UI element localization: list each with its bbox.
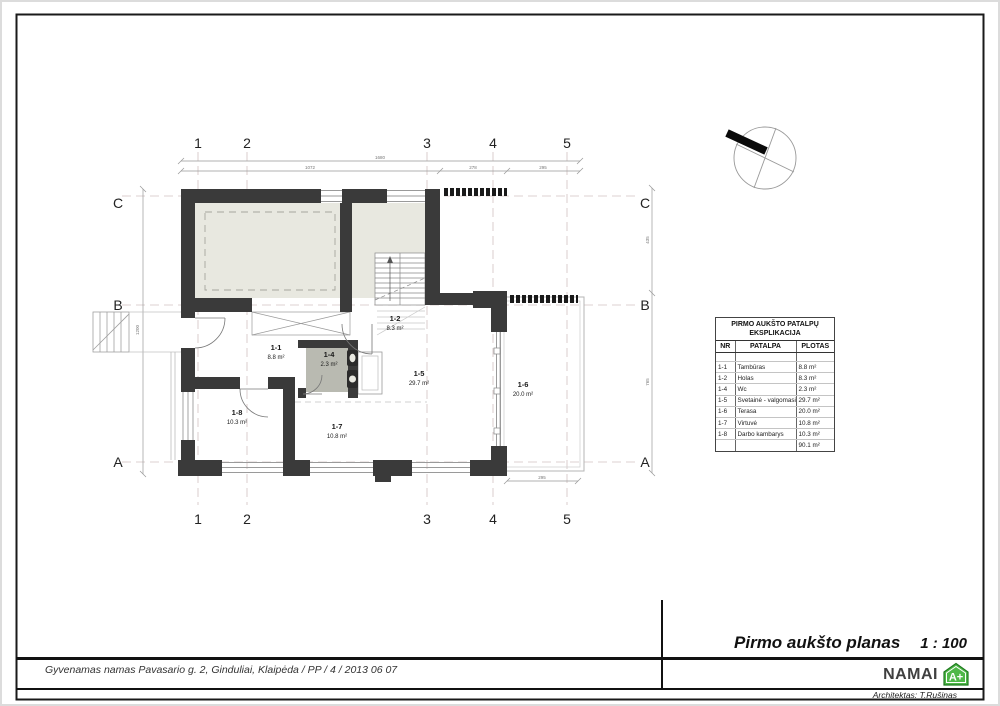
room-area-1-8: 10.3 m² <box>227 420 247 426</box>
grid-col-1-top: 1 <box>194 135 202 151</box>
table-row: 1-1 Tambūras 8.8 m² <box>716 362 834 373</box>
dim-top-seg1: 1072 <box>305 165 316 170</box>
drawing-sheet: 1680 1072 278 295 1200 435 765 295 <box>0 0 1000 706</box>
grid-row-a-left: A <box>113 454 123 470</box>
grid-col-1-bottom: 1 <box>194 511 202 527</box>
grid-col-4-bottom: 4 <box>489 511 497 527</box>
table-total-row: 90.1 m² <box>716 440 834 451</box>
legend-table: PIRMO AUKŠTO PATALPŲ EKSPLIKACIJA NR PAT… <box>715 317 835 452</box>
terrace <box>494 297 584 471</box>
grid-row-a-right: A <box>640 454 650 470</box>
grid-col-3-top: 3 <box>423 135 431 151</box>
room-id-1-5: 1-5 <box>414 369 425 378</box>
sheet-title-row: Pirmo aukšto planas 1 : 100 <box>734 633 967 653</box>
room-id-1-4: 1-4 <box>324 350 336 359</box>
architect-credit: Architektas: T.Rušinas <box>873 690 957 700</box>
garage-fill <box>195 203 340 298</box>
dim-right-seg1: 435 <box>645 236 650 244</box>
table-row: 1-6 Terasa 20.0 m² <box>716 406 834 417</box>
page-title: Pirmo aukšto planas <box>734 633 900 653</box>
titleblock-bottom-line <box>16 688 984 690</box>
room-area-1-2: 8.3 m² <box>386 326 403 332</box>
room-area-1-4: 2.3 m² <box>320 362 337 368</box>
titleblock-left-line <box>661 600 663 689</box>
room-area-1-5: 29.7 m² <box>409 381 429 387</box>
table-row: 1-7 Virtuvė 10.8 m² <box>716 417 834 428</box>
dim-top-total: 1680 <box>375 155 386 160</box>
grid-row-b-left: B <box>113 297 122 313</box>
room-id-1-6: 1-6 <box>518 380 529 389</box>
legend-title-line1: PIRMO AUKŠTO PATALPŲ <box>717 321 833 330</box>
dim-left-total: 1200 <box>135 324 140 335</box>
dim-top-seg3: 295 <box>539 165 547 170</box>
table-row: 1-5 Svetainė - valgomasis 29.7 m² <box>716 395 834 406</box>
table-row: 1-8 Darbo kambarys 10.3 m² <box>716 429 834 440</box>
room-id-1-7: 1-7 <box>332 422 343 431</box>
grid-col-4-top: 4 <box>489 135 497 151</box>
drawing-scale: 1 : 100 <box>920 635 967 652</box>
total-area: 90.1 m² <box>796 440 834 451</box>
room-id-1-8: 1-8 <box>232 408 243 417</box>
grid-row-c-right: C <box>640 195 650 211</box>
hatch-bands <box>443 188 578 303</box>
dim-top-seg2: 278 <box>469 165 477 170</box>
grid-col-2-bottom: 2 <box>243 511 251 527</box>
table-row: 1-2 Holas 8.3 m² <box>716 373 834 384</box>
builtin-closet <box>252 312 350 335</box>
legend-title-line2: EKSPLIKACIJA <box>717 330 833 339</box>
legend-header-patalpa: PATALPA <box>735 341 796 353</box>
room-id-1-1: 1-1 <box>271 343 282 352</box>
table-row: 1-4 Wc 2.3 m² <box>716 384 834 395</box>
project-info: Gyvenamas namas Pavasario g. 2, Gindulia… <box>45 664 397 676</box>
north-compass-icon <box>727 127 796 189</box>
dim-right-seg2: 765 <box>645 378 650 386</box>
brand-logo: NAMAI A+ <box>883 662 970 687</box>
room-area-1-1: 8.8 m² <box>267 355 284 361</box>
grid-row-b-right: B <box>640 297 649 313</box>
grid-col-2-top: 2 <box>243 135 251 151</box>
floor-plan-svg: 1680 1072 278 295 1200 435 765 295 <box>0 0 1000 706</box>
room-area-1-6: 20.0 m² <box>513 392 533 398</box>
room-id-1-2: 1-2 <box>390 314 401 323</box>
grid-col-5-bottom: 5 <box>563 511 571 527</box>
kitchen-counter <box>358 352 382 394</box>
brand-badge: A+ <box>949 672 963 684</box>
brand-name: NAMAI <box>883 666 938 684</box>
legend-header-plotas: PLOTAS <box>796 341 834 353</box>
titleblock-divider-line <box>16 657 984 660</box>
legend-header-nr: NR <box>716 341 735 353</box>
grid-col-5-top: 5 <box>563 135 571 151</box>
dim-bottom-terrace: 295 <box>538 475 546 480</box>
house-aplus-icon: A+ <box>942 662 970 687</box>
grid-row-c-left: C <box>113 195 123 211</box>
room-area-1-7: 10.8 m² <box>327 434 347 440</box>
grid-col-3-bottom: 3 <box>423 511 431 527</box>
